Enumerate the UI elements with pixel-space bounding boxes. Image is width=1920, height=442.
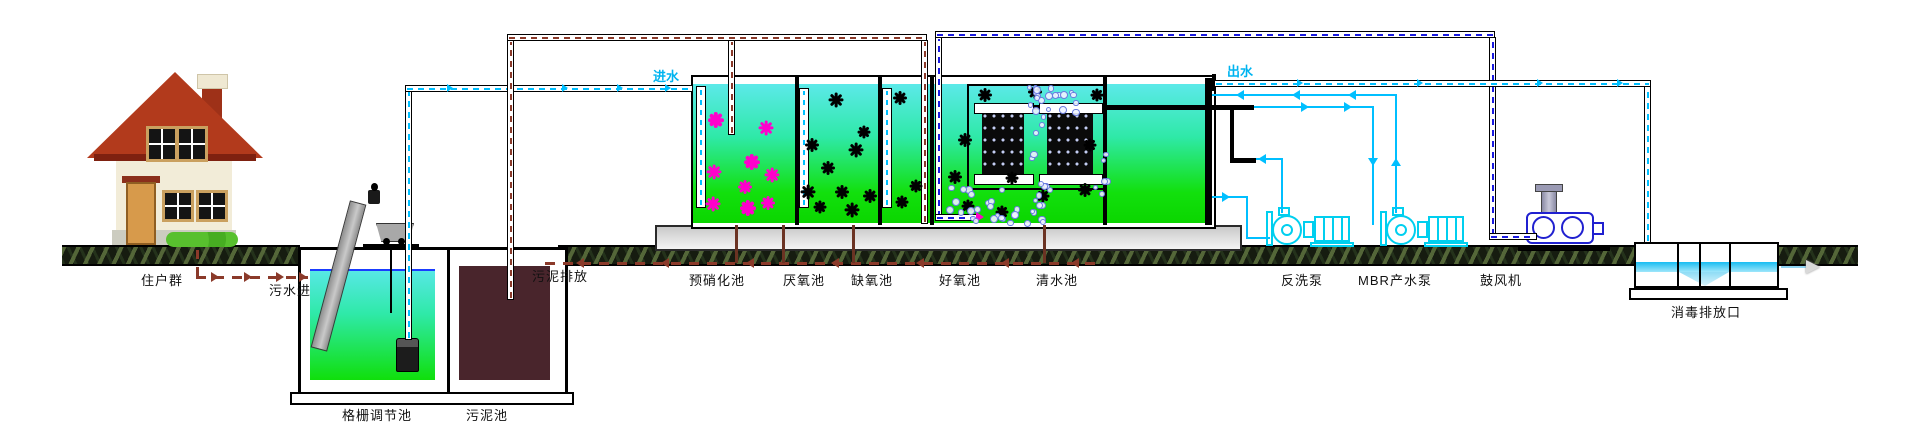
mbr-discharge-v [1395,94,1397,213]
outflow-label: 出水 [1227,61,1253,80]
door [126,182,156,245]
ground-band-left [62,245,300,266]
sludge-discharge-arrow-3 [831,258,839,268]
bubble-aerator-16 [958,209,964,215]
sludge-return-tee-drop [728,40,735,135]
bioreactor-right-wall [1205,78,1212,225]
bubble-right-modules-2 [1093,185,1098,190]
bubble-right-modules-4 [1099,191,1105,197]
inflow-arrow-2 [562,84,568,92]
bubble-between-modules-8 [1033,130,1039,136]
downcomer-inlet [696,86,706,208]
bubble-between-modules-14 [1030,209,1035,214]
sewage-arrow-1 [244,272,252,282]
drain-tick-1 [782,225,785,263]
outflow-arrow-0 [1297,79,1303,87]
permeate-suction-h [1254,106,1374,108]
upper-window-left [146,126,178,162]
outflow-drop-pipe [1644,86,1651,243]
air-blower-stub [1489,233,1537,240]
sludge-discharge-line [545,262,1095,265]
screen-tank-water-surface [310,269,435,271]
bubble-between-modules-10 [1030,151,1038,159]
permeate-suction-arrow-3 [1368,158,1378,166]
bubble-aerator-10 [948,185,954,191]
sewage-arrow-3 [299,272,307,282]
cw-suction-v [1246,196,1248,239]
lower-window-right [196,190,228,222]
outflow-arrow-1 [1417,79,1423,87]
screen-tank-label: 格栅调节池 [342,405,412,424]
mbr-discharge-arrow-2 [1348,90,1356,100]
drain-tick-3 [1043,225,1046,263]
bubble-aerator-13 [999,187,1005,193]
bubble-right-modules-1 [1103,152,1108,157]
bubble-above-modules-2 [1059,106,1067,114]
sludge-discharge-arrow-1 [661,258,669,268]
compartment-label-pre-nitrification: 预硝化池 [689,270,745,289]
membrane-top-plate-left [974,103,1034,114]
outflow-arrow-3 [1617,79,1623,87]
sludge-discharge-arrow-2 [746,258,754,268]
bubble-aerator-12 [968,191,975,198]
backwash-discharge-arrow [1258,154,1266,164]
compartment-label-anaerobic: 厌氧池 [783,270,825,289]
blower-label: 鼓风机 [1480,270,1522,289]
compartment-label-aerobic: 好氧池 [939,270,981,289]
lower-window-left [162,190,194,222]
wall-anoxic-aerobic [930,75,934,225]
air-left-riser [935,37,942,219]
membrane-bottom-plate-left [974,174,1034,185]
drain-tick-0 [735,225,738,263]
permeate-bracket-vertical [1230,105,1234,162]
permeate-suction-arrow-2 [1344,102,1352,112]
bubble-trail-2 [1040,219,1046,225]
bubble-between-modules-11 [1036,202,1043,209]
mbr-discharge-arrow-1 [1391,158,1401,166]
compartment-label-clear-water: 清水池 [1036,270,1078,289]
backwash-pump-label: 反洗泵 [1281,270,1323,289]
cw-suction-h [1212,196,1248,198]
downcomer-anoxic [882,88,892,208]
cart-wheel-left [383,238,390,245]
sludge-discharge-arrow-0 [576,258,584,268]
mbr-discharge-arrow-4 [1236,90,1244,100]
house [80,70,270,247]
residential-label: 住户群 [141,270,183,289]
treated-water-arrowhead [1806,260,1820,274]
mbr-pump-label: MBR产水泵 [1358,270,1432,289]
compartment-label-anoxic: 缺氧池 [851,270,893,289]
inflow-riser-pipe [405,89,412,340]
sludge-return-top-pipe [507,34,927,41]
bubble-above-modules-7 [1073,100,1078,105]
inflow-arrow-0 [447,84,453,92]
sludge-tank-label: 污泥池 [466,405,508,424]
bubble-aerator-9 [990,215,998,223]
mbr-discharge-arrow-3 [1292,90,1300,100]
sewage-in-label: 污水进 [269,280,311,299]
inflow-arrow-3 [617,84,623,92]
upper-window-right [176,126,208,162]
air-right-riser [1489,37,1496,237]
drain-tick-2 [852,225,855,263]
sewage-line-vertical [196,250,199,277]
outflow-header-pipe [1214,80,1651,87]
bubble-above-modules-13 [1048,85,1054,91]
bubble-between-modules-15 [1038,181,1044,187]
sludge-return-right-riser [921,40,928,224]
cart-wheel-right [398,238,405,245]
bush [166,232,238,247]
sewage-arrow-0 [211,272,219,282]
disinfection-outlet-label: 消毒排放口 [1671,302,1741,321]
pretreatment-base-slab [290,392,574,405]
process-flow-diagram: 住户群 污水进 格栅调节池 污泥池 污泥排放 进水 出水 预硝化池 厌氧池 缺氧… [0,0,1920,442]
sludge-discharge-arrow-6 [1071,258,1079,268]
inflow-arrow-4 [665,84,671,92]
inlet-channel-wall [390,247,392,313]
screen-motor-cap [371,183,378,191]
air-top-pipe [935,31,1495,38]
sewage-arrow-2 [276,272,284,282]
bubble-aerator-11 [946,206,954,214]
outflow-arrow-2 [1537,79,1543,87]
backwash-discharge-v [1281,158,1283,213]
permeate-suction-arrow-1 [1301,102,1309,112]
membrane-module-left [982,112,1024,176]
bubble-trail-7 [998,215,1004,221]
cw-suction-h2 [1246,237,1270,239]
sludge-discharge-arrow-5 [1001,258,1009,268]
bubble-above-modules-16 [1046,107,1051,112]
bubble-trail-0 [1024,220,1031,227]
sludge-return-left-riser [507,40,514,300]
bubble-aerator-8 [973,218,979,224]
cw-suction-arrow [1222,192,1230,202]
screen-motor [368,190,380,204]
permeate-bracket-bottom [1230,158,1256,163]
sludge-discharge-label: 污泥排放 [532,266,588,285]
bubble-trail-6 [1011,211,1019,219]
bubble-right-modules-5 [1101,178,1108,185]
inflow-label: 进水 [653,66,679,85]
submersible-pump [396,338,419,372]
treated-water-arrow [1781,266,1809,268]
sludge-discharge-arrow-4 [916,258,924,268]
